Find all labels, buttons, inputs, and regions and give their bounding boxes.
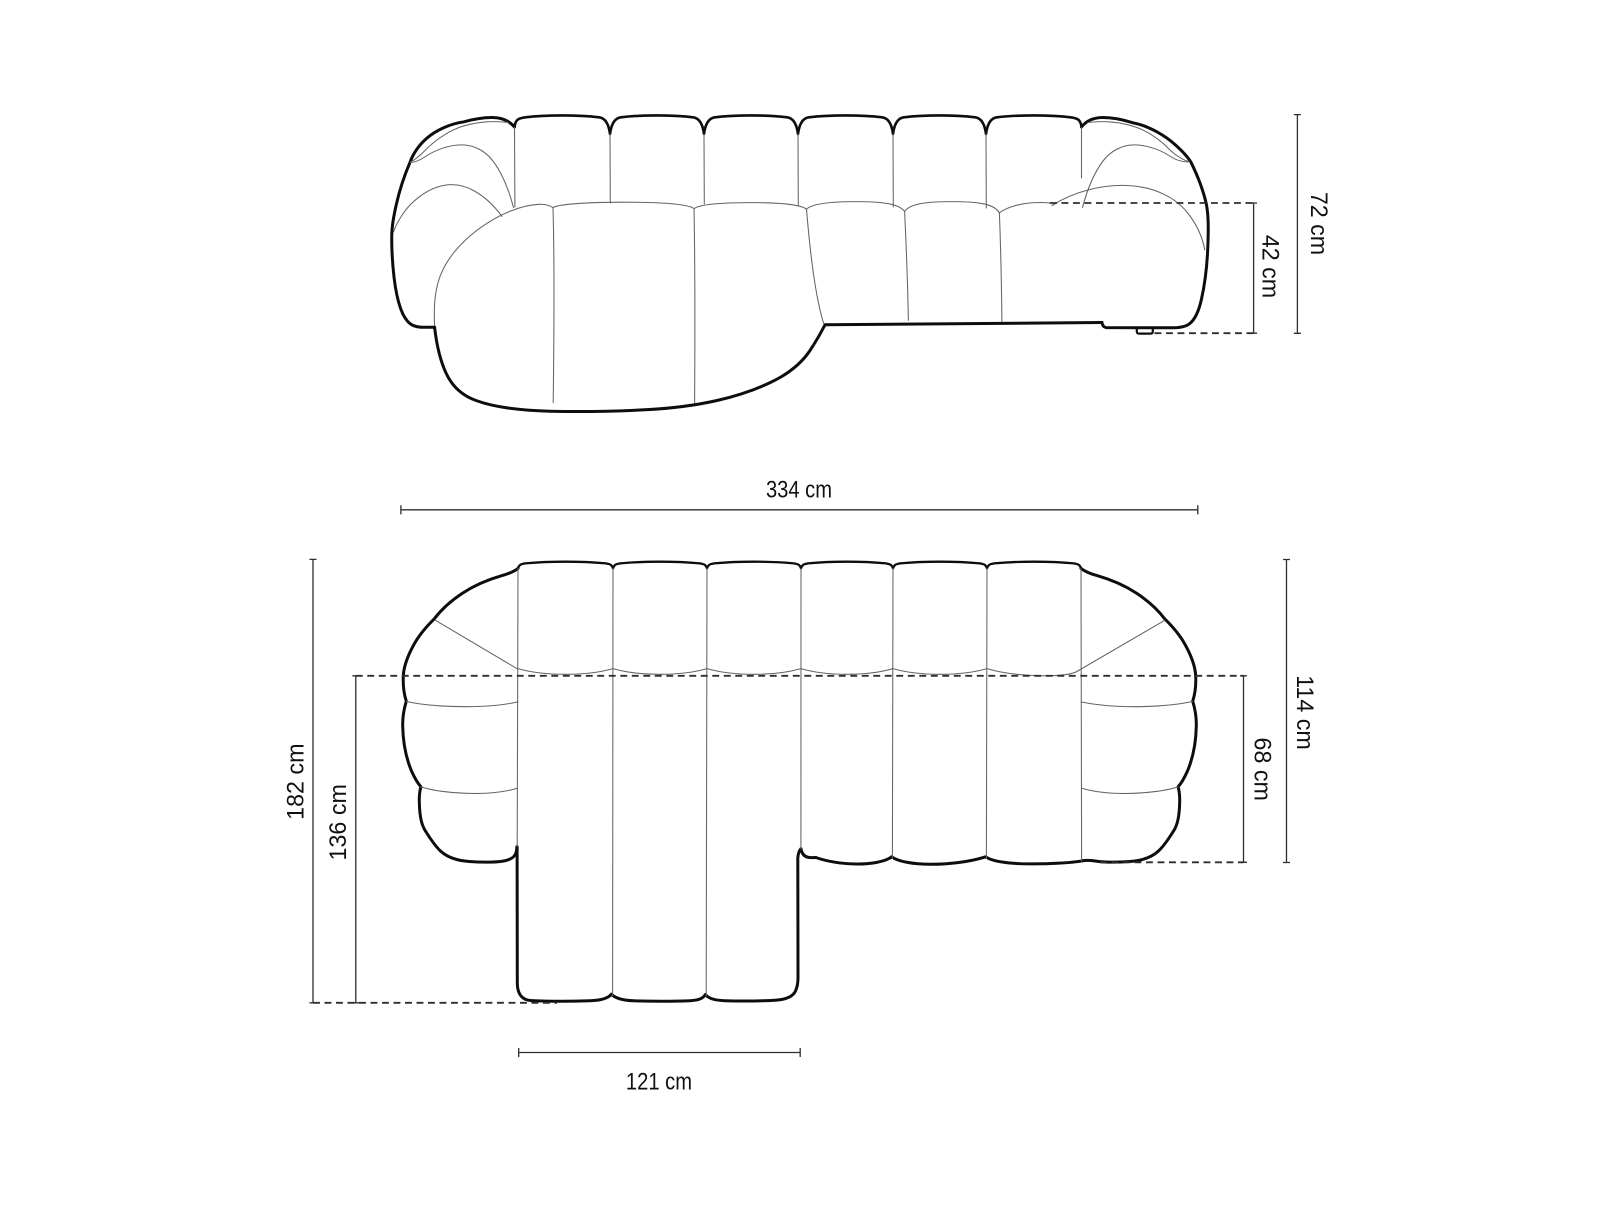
svg-text:42 cm: 42 cm <box>1256 235 1282 298</box>
svg-text:68 cm: 68 cm <box>1248 738 1274 801</box>
svg-text:72 cm: 72 cm <box>1305 192 1331 255</box>
svg-text:334 cm: 334 cm <box>766 476 832 503</box>
svg-text:121 cm: 121 cm <box>626 1068 692 1095</box>
svg-text:182 cm: 182 cm <box>283 744 309 820</box>
svg-text:114 cm: 114 cm <box>1291 675 1317 750</box>
svg-text:136 cm: 136 cm <box>326 784 352 860</box>
